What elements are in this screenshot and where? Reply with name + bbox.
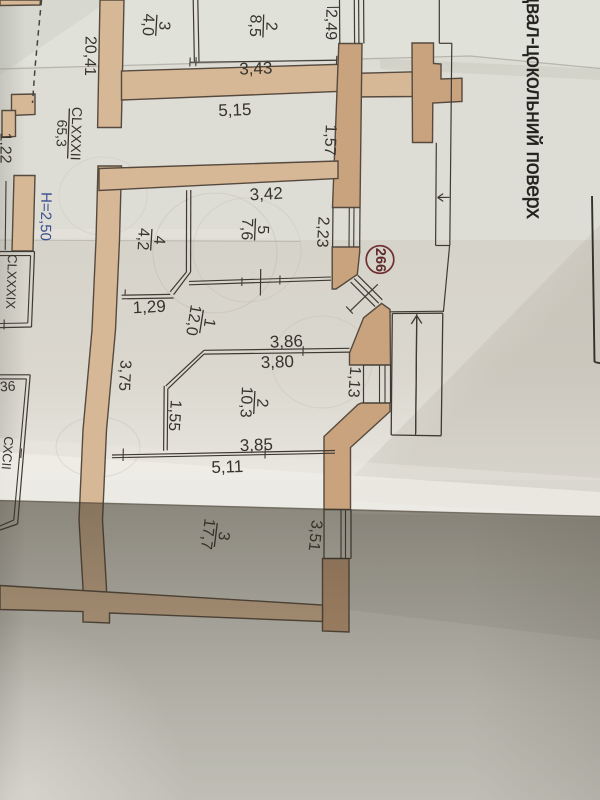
svg-text:Н=2,50: Н=2,50 [37, 192, 55, 241]
svg-text:4: 4 [150, 235, 168, 245]
svg-text:36: 36 [0, 377, 16, 394]
svg-text:3,75: 3,75 [115, 360, 134, 392]
svg-text:4,0: 4,0 [139, 13, 157, 36]
svg-text:8,5: 8,5 [246, 14, 264, 37]
svg-text:5: 5 [254, 225, 271, 235]
svg-text:65,3: 65,3 [54, 119, 71, 147]
svg-text:підвал-цокольний поверх: підвал-цокольний поверх [522, 0, 545, 219]
svg-text:3,80: 3,80 [260, 352, 294, 372]
svg-text:3,43: 3,43 [239, 58, 273, 78]
svg-text:20,41: 20,41 [81, 36, 99, 76]
svg-text:7,6: 7,6 [237, 218, 255, 241]
svg-text:2,49: 2,49 [322, 9, 340, 41]
svg-text:3,86: 3,86 [269, 331, 303, 351]
svg-text:4,2: 4,2 [134, 228, 152, 251]
svg-text:2: 2 [253, 398, 270, 408]
svg-text:1,13: 1,13 [344, 366, 363, 398]
svg-text:3,85: 3,85 [239, 435, 273, 455]
svg-text:3,42: 3,42 [249, 184, 283, 205]
svg-text:2,23: 2,23 [313, 216, 332, 248]
svg-text:1,55: 1,55 [165, 399, 184, 431]
svg-text:5,15: 5,15 [218, 100, 252, 120]
svg-text:1,57: 1,57 [321, 124, 339, 156]
svg-text:2: 2 [262, 22, 279, 32]
svg-text:1,22: 1,22 [0, 132, 13, 163]
svg-text:CLXXXIX: CLXXXIX [3, 254, 20, 310]
svg-text:СХСІІ: СХСІІ [0, 436, 16, 471]
svg-text:266: 266 [372, 248, 388, 272]
svg-text:5,11: 5,11 [211, 457, 243, 477]
svg-text:3: 3 [155, 21, 173, 31]
svg-text:10,3: 10,3 [236, 386, 255, 418]
svg-text:1,29: 1,29 [132, 297, 166, 318]
